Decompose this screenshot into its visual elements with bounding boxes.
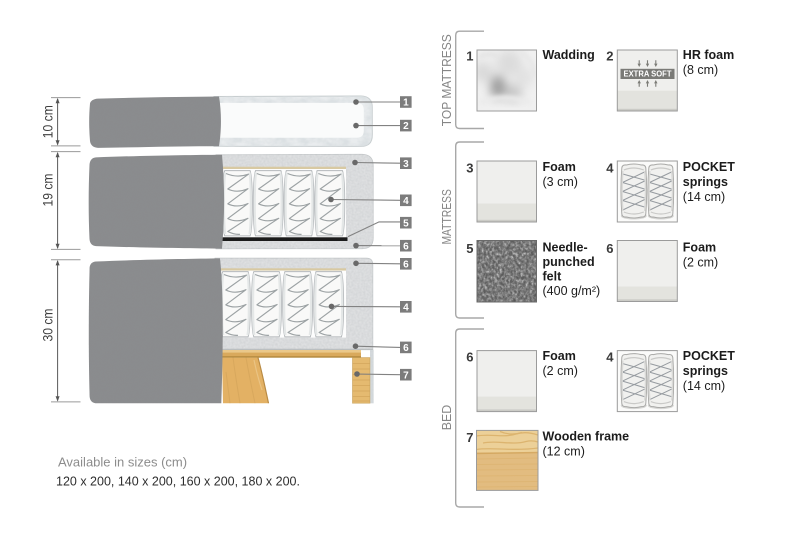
svg-text:30 cm: 30 cm xyxy=(39,309,55,342)
svg-text:4: 4 xyxy=(403,196,409,207)
svg-text:POCKET: POCKET xyxy=(683,349,735,363)
svg-text:springs: springs xyxy=(683,175,728,189)
svg-text:3: 3 xyxy=(466,161,473,176)
svg-text:(2 cm): (2 cm) xyxy=(543,364,578,378)
svg-text:HR foam: HR foam xyxy=(683,48,734,62)
svg-text:7: 7 xyxy=(403,370,409,381)
svg-text:(12 cm): (12 cm) xyxy=(543,445,585,459)
svg-text:BED: BED xyxy=(439,405,454,431)
svg-text:MATTRESS: MATTRESS xyxy=(439,189,454,245)
svg-text:(14 cm): (14 cm) xyxy=(683,190,725,204)
svg-text:EXTRA SOFT: EXTRA SOFT xyxy=(624,69,672,79)
svg-text:4: 4 xyxy=(606,350,614,365)
svg-text:Foam: Foam xyxy=(543,349,576,363)
svg-text:19 cm: 19 cm xyxy=(39,174,55,207)
svg-text:6: 6 xyxy=(403,343,409,354)
svg-text:(3 cm): (3 cm) xyxy=(543,175,578,189)
svg-text:6: 6 xyxy=(466,350,473,365)
svg-text:Foam: Foam xyxy=(543,160,576,174)
svg-text:1: 1 xyxy=(466,49,473,64)
svg-text:120 x 200, 140 x 200, 160 x 20: 120 x 200, 140 x 200, 160 x 200, 180 x 2… xyxy=(56,475,300,489)
svg-text:6: 6 xyxy=(403,241,409,252)
svg-text:POCKET: POCKET xyxy=(683,160,735,174)
svg-text:5: 5 xyxy=(403,218,409,229)
svg-text:6: 6 xyxy=(606,241,613,256)
svg-text:3: 3 xyxy=(403,159,409,170)
svg-text:felt: felt xyxy=(543,270,563,284)
svg-text:Needle-: Needle- xyxy=(543,241,588,255)
svg-text:Foam: Foam xyxy=(683,241,716,255)
svg-text:Wooden frame: Wooden frame xyxy=(543,430,630,444)
svg-text:4: 4 xyxy=(606,161,614,176)
svg-text:punched: punched xyxy=(543,255,595,269)
svg-text:(400 g/m²): (400 g/m²) xyxy=(543,284,601,298)
svg-text:TOP MATTRESS: TOP MATTRESS xyxy=(439,34,454,126)
svg-text:4: 4 xyxy=(403,302,409,313)
svg-text:(14 cm): (14 cm) xyxy=(683,379,725,393)
svg-text:Available in sizes (cm): Available in sizes (cm) xyxy=(58,455,187,470)
svg-text:5: 5 xyxy=(466,241,473,256)
svg-text:1: 1 xyxy=(403,98,409,109)
svg-text:7: 7 xyxy=(466,430,473,445)
svg-text:10 cm: 10 cm xyxy=(39,105,55,138)
svg-text:springs: springs xyxy=(683,364,728,378)
svg-text:Wadding: Wadding xyxy=(543,48,595,62)
svg-text:(8 cm): (8 cm) xyxy=(683,63,718,77)
svg-text:6: 6 xyxy=(403,259,409,270)
svg-text:(2 cm): (2 cm) xyxy=(683,256,718,270)
svg-text:2: 2 xyxy=(606,49,613,64)
svg-text:2: 2 xyxy=(403,121,409,132)
